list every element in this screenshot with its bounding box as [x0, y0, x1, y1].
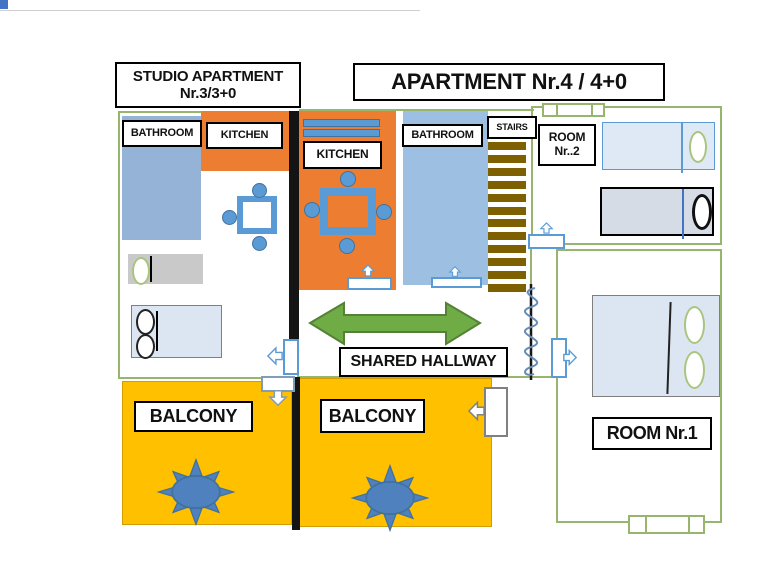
label-text: BALCONY — [150, 406, 238, 427]
label-room2: ROOM Nr..2 — [538, 124, 596, 166]
label-text: STAIRS — [496, 122, 527, 132]
studio-title: STUDIO APARTMENT Nr.3/3+0 — [115, 62, 301, 108]
label-text: ROOM — [549, 131, 586, 145]
stairs-icon — [488, 142, 526, 292]
corner-mark — [0, 0, 8, 9]
apartment4-title: APARTMENT Nr.4 / 4+0 — [353, 63, 665, 101]
chair-dot-icon — [376, 204, 392, 220]
bed-divider — [150, 256, 152, 282]
label-text: KITCHEN — [317, 148, 369, 162]
studio-table-icon — [237, 196, 277, 234]
label-text: KITCHEN — [221, 129, 269, 142]
label-balcony-left: BALCONY — [134, 401, 253, 432]
door-arrow-left-icon — [468, 400, 485, 422]
bed-divider — [156, 311, 158, 351]
floor-plan: STUDIO APARTMENT Nr.3/3+0 APARTMENT Nr.4… — [0, 0, 783, 562]
door-icon — [484, 387, 508, 437]
label-text: Nr..2 — [554, 145, 579, 159]
label-shared-hallway: SHARED HALLWAY — [339, 347, 508, 377]
pillow-icon — [684, 306, 705, 344]
chair-dot-icon — [222, 210, 237, 225]
pillow-icon — [689, 131, 707, 163]
hallway-double-arrow-icon — [308, 300, 482, 347]
door-arrow-left-icon — [267, 346, 283, 366]
kitchen-counter-bar — [303, 119, 380, 127]
label-text: BATHROOM — [131, 127, 193, 140]
bed-divider — [682, 189, 684, 239]
sun-icon — [346, 464, 434, 532]
pillow-icon — [684, 351, 705, 389]
door-arrow-up-icon — [361, 262, 376, 280]
chair-dot-icon — [339, 238, 355, 254]
chair-dot-icon — [252, 183, 267, 198]
label-stairs: STAIRS — [487, 116, 537, 139]
pillow-icon — [692, 194, 712, 230]
chair-dot-icon — [340, 171, 356, 187]
studio-title-line2: Nr.3/3+0 — [180, 85, 236, 102]
spiral-coil-icon — [516, 284, 544, 380]
label-studio-kitchen: KITCHEN — [206, 122, 283, 149]
chair-dot-icon — [304, 202, 320, 218]
door-arrow-right-icon — [563, 349, 577, 366]
window-icon — [628, 515, 705, 534]
pillow-icon — [136, 309, 155, 335]
party-wall-balcony — [292, 377, 300, 530]
apt4-table-icon — [320, 188, 376, 235]
door-arrow-up-icon — [449, 264, 462, 280]
label-apt4-kitchen: KITCHEN — [303, 141, 382, 169]
label-apt4-bathroom: BATHROOM — [402, 124, 483, 147]
pillow-icon — [132, 257, 150, 285]
chair-dot-icon — [252, 236, 267, 251]
label-text: ROOM Nr.1 — [607, 423, 698, 444]
party-wall-upper — [289, 111, 299, 340]
top-edge-line — [0, 10, 420, 11]
door-arrow-up-icon — [540, 220, 554, 237]
door-icon — [283, 339, 299, 375]
door-arrow-down-icon — [268, 389, 288, 407]
sun-icon — [152, 458, 240, 526]
label-text: BALCONY — [329, 406, 417, 427]
label-text: SHARED HALLWAY — [351, 353, 497, 371]
window-icon — [542, 103, 605, 117]
label-balcony-right: BALCONY — [320, 399, 425, 433]
studio-title-line1: STUDIO APARTMENT — [133, 68, 283, 85]
label-room1: ROOM Nr.1 — [592, 417, 712, 450]
label-studio-bathroom: BATHROOM — [122, 120, 202, 147]
apartment4-title-text: APARTMENT Nr.4 / 4+0 — [391, 69, 627, 94]
label-text: BATHROOM — [411, 129, 473, 142]
bed-divider — [681, 123, 683, 173]
kitchen-counter-bar — [303, 129, 380, 137]
pillow-icon — [136, 334, 155, 359]
